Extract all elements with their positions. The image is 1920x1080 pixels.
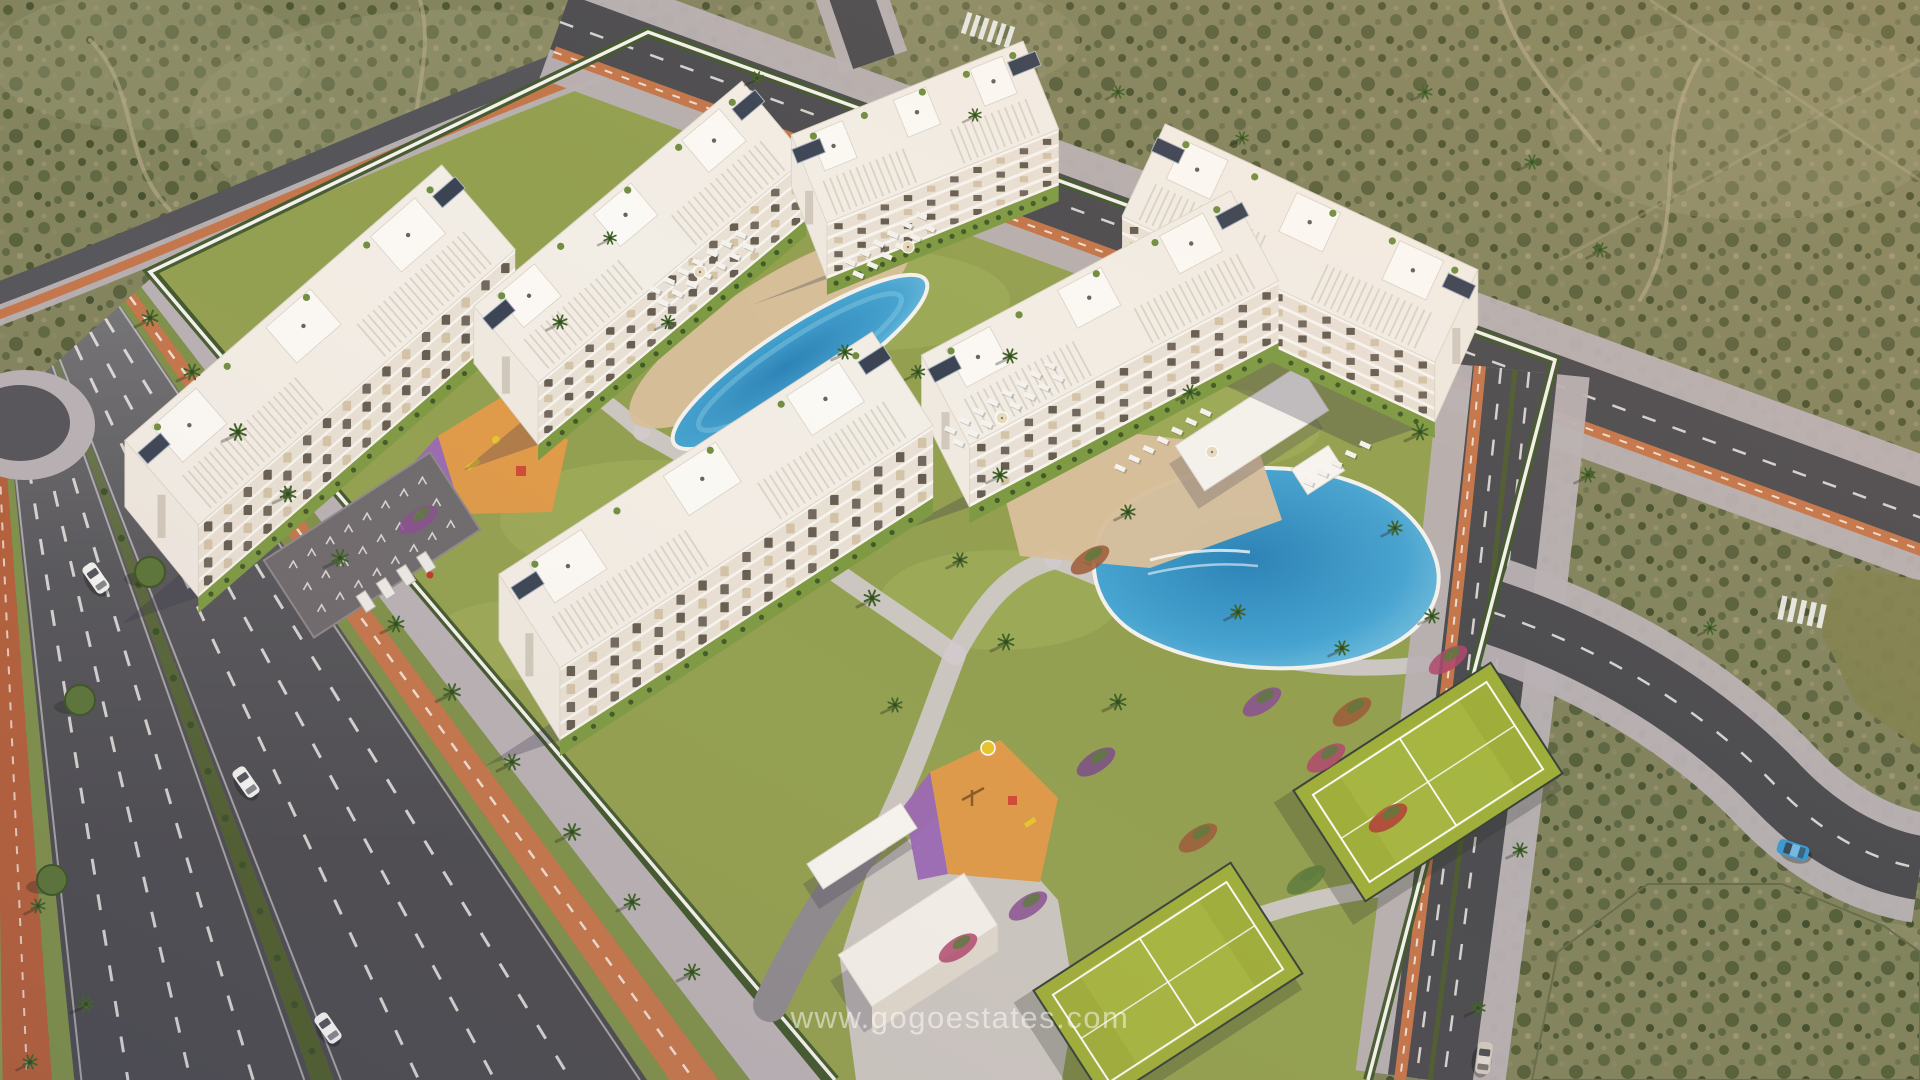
aerial-render-canvas [0,0,1920,1080]
watermark-text: www.gogoestates.com [791,1000,1130,1036]
aerial-render: www.gogoestates.com [0,0,1920,1080]
